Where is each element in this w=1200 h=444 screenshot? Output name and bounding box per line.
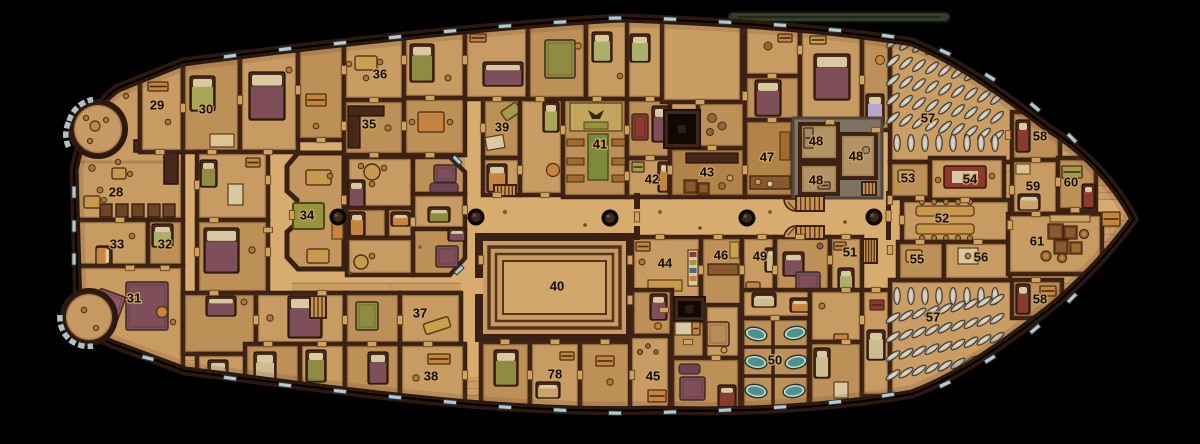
svg-text:44: 44 [658,255,673,270]
svg-text:57: 57 [926,309,940,324]
svg-text:59: 59 [1026,178,1040,193]
svg-text:50: 50 [768,352,782,367]
svg-text:51: 51 [843,244,857,259]
svg-text:38: 38 [424,368,438,383]
svg-text:32: 32 [158,236,172,251]
svg-text:28: 28 [109,184,123,199]
svg-text:29: 29 [150,97,164,112]
svg-text:55: 55 [910,251,924,266]
svg-text:42: 42 [645,171,659,186]
svg-text:43: 43 [700,164,714,179]
svg-text:78: 78 [548,366,562,381]
svg-text:48: 48 [809,172,823,187]
svg-text:33: 33 [110,236,124,251]
svg-text:56: 56 [974,249,988,264]
svg-text:48: 48 [849,148,863,163]
svg-text:39: 39 [495,119,509,134]
svg-text:49: 49 [753,248,767,263]
svg-text:41: 41 [593,136,607,151]
svg-text:57: 57 [921,110,935,125]
svg-text:61: 61 [1030,233,1044,248]
svg-text:52: 52 [935,210,949,225]
svg-text:37: 37 [413,305,427,320]
svg-text:54: 54 [963,171,978,186]
svg-text:35: 35 [362,116,376,131]
svg-text:40: 40 [550,278,564,293]
svg-text:58: 58 [1033,128,1047,143]
svg-text:60: 60 [1064,174,1078,189]
svg-text:30: 30 [199,101,213,116]
svg-text:53: 53 [901,170,915,185]
svg-text:58: 58 [1033,291,1047,306]
svg-text:36: 36 [373,66,387,81]
svg-text:34: 34 [300,207,315,222]
svg-text:31: 31 [127,290,141,305]
svg-text:47: 47 [760,149,774,164]
svg-text:48: 48 [809,133,823,148]
svg-text:46: 46 [714,247,728,262]
svg-text:45: 45 [646,368,660,383]
